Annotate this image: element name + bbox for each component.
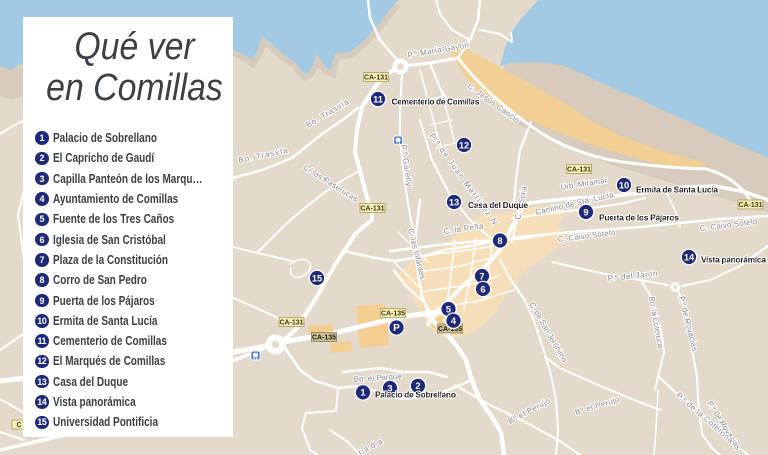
svg-text:Puerta de los Pájaros: Puerta de los Pájaros: [599, 212, 679, 222]
svg-text:6: 6: [480, 284, 485, 294]
svg-text:7: 7: [479, 271, 484, 281]
svg-text:CA-135: CA-135: [381, 311, 405, 318]
svg-text:CA-131: CA-131: [279, 320, 303, 327]
svg-text:11: 11: [373, 94, 383, 104]
svg-text:1: 1: [360, 388, 365, 398]
svg-text:Palacio de Sobrellano: Palacio de Sobrellano: [375, 390, 456, 400]
svg-text:14: 14: [684, 252, 695, 262]
svg-text:10: 10: [619, 180, 629, 190]
svg-text:CA-135: CA-135: [312, 335, 336, 342]
svg-text:Casa del Duque: Casa del Duque: [468, 200, 528, 210]
svg-text:CA-131: CA-131: [738, 202, 762, 209]
svg-text:Vista panorámica: Vista panorámica: [701, 255, 766, 265]
svg-text:Cementerio de Comillas: Cementerio de Comillas: [392, 96, 480, 106]
svg-text:9: 9: [583, 207, 588, 217]
svg-text:P: P: [393, 323, 400, 334]
svg-text:15: 15: [312, 273, 322, 283]
svg-text:CA-131: CA-131: [360, 206, 384, 213]
svg-text:5: 5: [446, 304, 451, 314]
svg-text:CA-131: CA-131: [567, 167, 591, 174]
svg-text:C: C: [16, 422, 21, 429]
svg-text:CA-131: CA-131: [364, 75, 388, 82]
svg-text:Ermita de Santa Lucía: Ermita de Santa Lucía: [636, 184, 718, 194]
svg-text:13: 13: [449, 197, 459, 207]
svg-text:4: 4: [451, 316, 457, 326]
svg-text:12: 12: [459, 140, 469, 150]
svg-text:8: 8: [497, 236, 502, 246]
